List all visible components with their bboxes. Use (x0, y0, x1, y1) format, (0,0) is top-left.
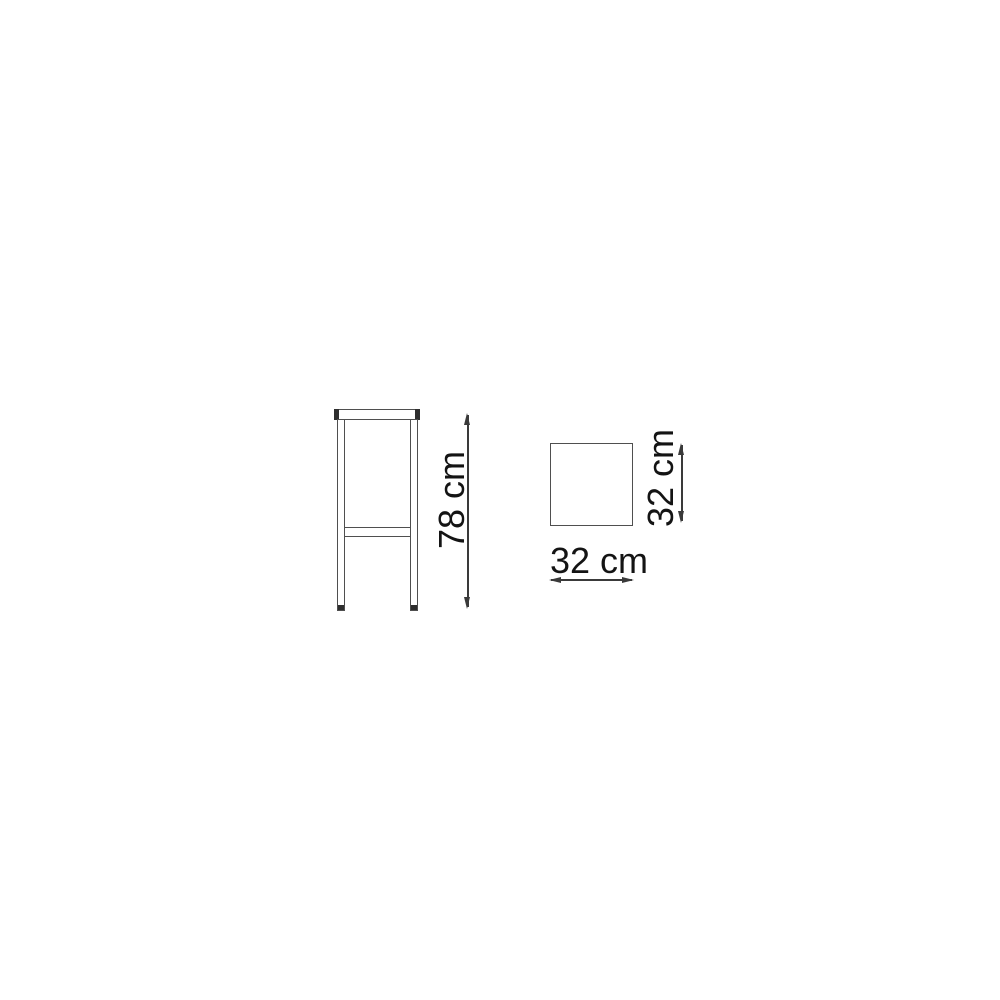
footrest-bar (344, 527, 411, 537)
depth-dimension-label: 32 cm (642, 413, 680, 543)
seat-top-view-square (550, 443, 633, 526)
arrowhead-up-icon (464, 413, 470, 425)
stool-leg-left (337, 419, 345, 611)
arrowhead-right-icon (622, 577, 634, 583)
depth-dimension-line (681, 445, 683, 521)
arrowhead-down-icon (464, 597, 470, 609)
stool-foot-right (411, 605, 417, 610)
product-dimension-drawing: 78 cm 32 cm 32 cm (0, 0, 1000, 1000)
width-dimension-label: 32 cm (534, 542, 664, 580)
width-dimension-line (551, 579, 632, 581)
stool-leg-right (410, 419, 418, 611)
height-dimension-label: 78 cm (433, 435, 471, 565)
stool-seat (334, 409, 420, 420)
arrowhead-left-icon (549, 577, 561, 583)
stool-foot-left (338, 605, 344, 610)
